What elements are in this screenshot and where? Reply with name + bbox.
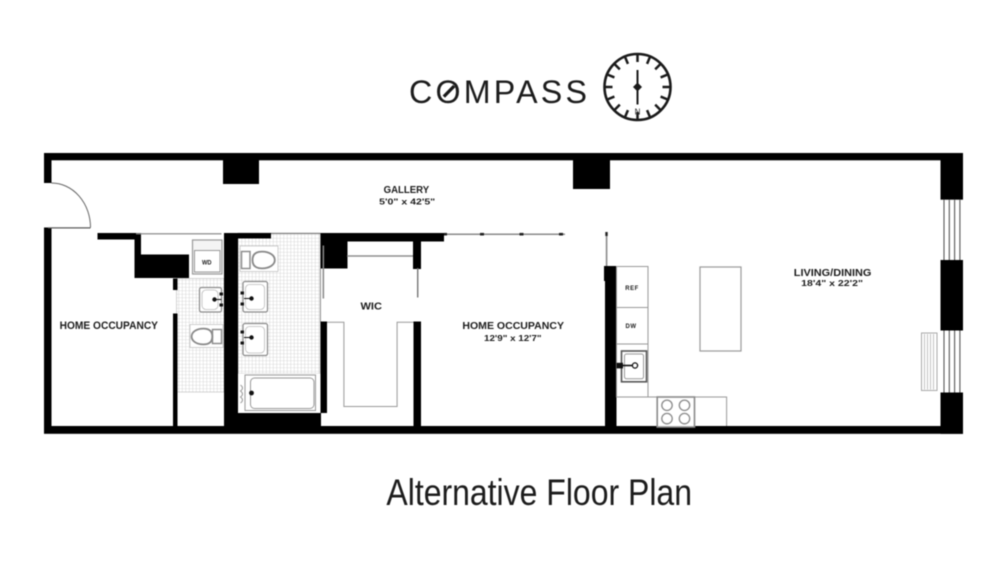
svg-text:WD: WD xyxy=(202,261,212,267)
svg-text:WIC: WIC xyxy=(361,302,383,313)
svg-text:DW: DW xyxy=(626,324,637,330)
svg-text:N: N xyxy=(635,108,641,117)
svg-text:Alternative Floor Plan: Alternative Floor Plan xyxy=(386,471,692,513)
svg-text:HOME OCCUPANCY: HOME OCCUPANCY xyxy=(60,320,159,332)
svg-text:LIVING/DINING: LIVING/DINING xyxy=(794,268,872,279)
svg-text:GALLERY: GALLERY xyxy=(384,185,430,196)
svg-text:18'4" x 22'2": 18'4" x 22'2" xyxy=(801,279,863,288)
svg-text:HOME OCCUPANCY: HOME OCCUPANCY xyxy=(462,321,564,332)
svg-text:REF: REF xyxy=(625,286,639,292)
svg-text:5'0" x 42'5": 5'0" x 42'5" xyxy=(379,198,435,207)
svg-text:12'9" x 12'7": 12'9" x 12'7" xyxy=(484,334,542,343)
svg-text:COMPASS: COMPASS xyxy=(409,74,587,110)
